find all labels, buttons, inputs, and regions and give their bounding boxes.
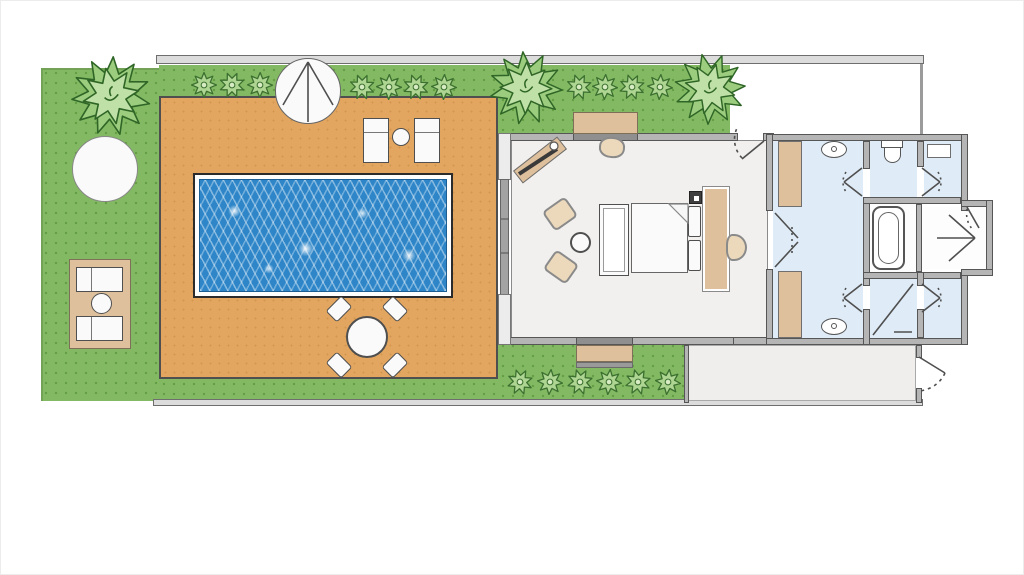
pillow: [688, 240, 701, 271]
bush-icon: [619, 74, 645, 100]
bed: [631, 203, 688, 273]
plant-icon: [71, 56, 151, 136]
vestibule-wall-bottom: [961, 269, 993, 276]
basin-drain: [831, 323, 837, 329]
bush-icon: [537, 369, 563, 395]
pillow: [688, 206, 701, 237]
partition-wall: [917, 141, 924, 167]
bush-icon: [349, 74, 375, 100]
corridor-door: [919, 357, 945, 391]
entry-step: [573, 112, 638, 134]
corridor-wall-right: [916, 388, 922, 403]
bush-icon: [191, 72, 217, 98]
lamp-bulb: [694, 196, 699, 201]
step-threshold: [576, 362, 633, 368]
bush-icon: [567, 369, 593, 395]
basin-drain: [831, 146, 837, 152]
lounger-backrest-line: [91, 317, 92, 340]
washbasin: [821, 141, 847, 158]
corridor-wall-right: [916, 345, 922, 358]
bathroom-wall-right: [961, 269, 968, 345]
lounger-backrest-line: [91, 268, 92, 291]
corridor-wall-left: [684, 345, 689, 403]
sun-lounger: [414, 118, 440, 163]
side-table: [392, 128, 410, 146]
bathtub: [872, 206, 905, 270]
side-table: [91, 293, 112, 314]
toilet-bowl: [884, 147, 901, 163]
sliding-glass-door: [500, 179, 509, 295]
swimming-pool: [193, 173, 453, 298]
bed-bench: [599, 204, 629, 276]
wardrobe: [778, 141, 802, 207]
dining-table: [346, 316, 388, 358]
pool-water: [199, 179, 447, 292]
bedside-lamp: [689, 191, 702, 204]
plant-icon: [489, 51, 563, 125]
partition-wall: [863, 141, 870, 169]
bush-icon: [566, 74, 592, 100]
bathroom-wall-left: [766, 134, 773, 211]
bush-icon: [507, 369, 533, 395]
floor-plan-canvas: [0, 0, 1024, 575]
bedroom-wall-left: [498, 294, 511, 345]
bush-icon: [596, 369, 622, 395]
plant-icon: [674, 53, 746, 125]
partition-wall: [863, 197, 961, 204]
partition-wall: [917, 309, 924, 338]
sun-lounger: [76, 316, 123, 341]
bush-icon: [655, 369, 681, 395]
wardrobe: [778, 271, 802, 338]
entry-walkway: [730, 65, 920, 134]
door-threshold: [576, 337, 633, 345]
shelf-niche: [927, 144, 951, 158]
sun-lounger: [76, 267, 123, 292]
bathtub-basin: [878, 212, 899, 264]
bush-icon: [403, 74, 429, 100]
walkway-right-wall: [920, 64, 923, 135]
bush-icon: [592, 74, 618, 100]
sun-lounger: [363, 118, 389, 163]
bush-icon: [647, 74, 673, 100]
hall-floor: [924, 279, 961, 338]
entry-vestibule-floor: [922, 207, 986, 269]
bush-icon: [247, 72, 273, 98]
bush-icon: [376, 74, 402, 100]
parasol: [275, 58, 341, 124]
bedroom-wall-bottom: [632, 337, 734, 345]
lounger-backrest-line: [415, 132, 439, 133]
washbasin: [821, 318, 847, 335]
bathroom-wall-left: [766, 269, 773, 345]
round-daybed: [72, 136, 138, 202]
shower-room-floor: [870, 279, 917, 338]
bush-icon: [431, 74, 457, 100]
partition-wall: [916, 204, 922, 272]
bush-icon: [219, 72, 245, 98]
lounger-backrest-line: [364, 132, 388, 133]
partition-wall: [917, 272, 924, 286]
headboard-desk: [703, 187, 729, 291]
bedroom-wall-left: [498, 133, 511, 180]
vestibule-wall-right: [986, 200, 993, 276]
garden-step: [576, 345, 633, 362]
partition-wall: [863, 272, 961, 279]
bedroom-wall-top: [637, 133, 738, 141]
coffee-table: [570, 232, 591, 253]
garden-lawn-bottom: [159, 379, 501, 401]
partition-wall: [863, 309, 870, 345]
bench-cushion: [603, 208, 625, 272]
bathroom-wall-top: [766, 134, 968, 141]
bush-icon: [625, 369, 651, 395]
rear-corridor-floor: [687, 345, 916, 401]
